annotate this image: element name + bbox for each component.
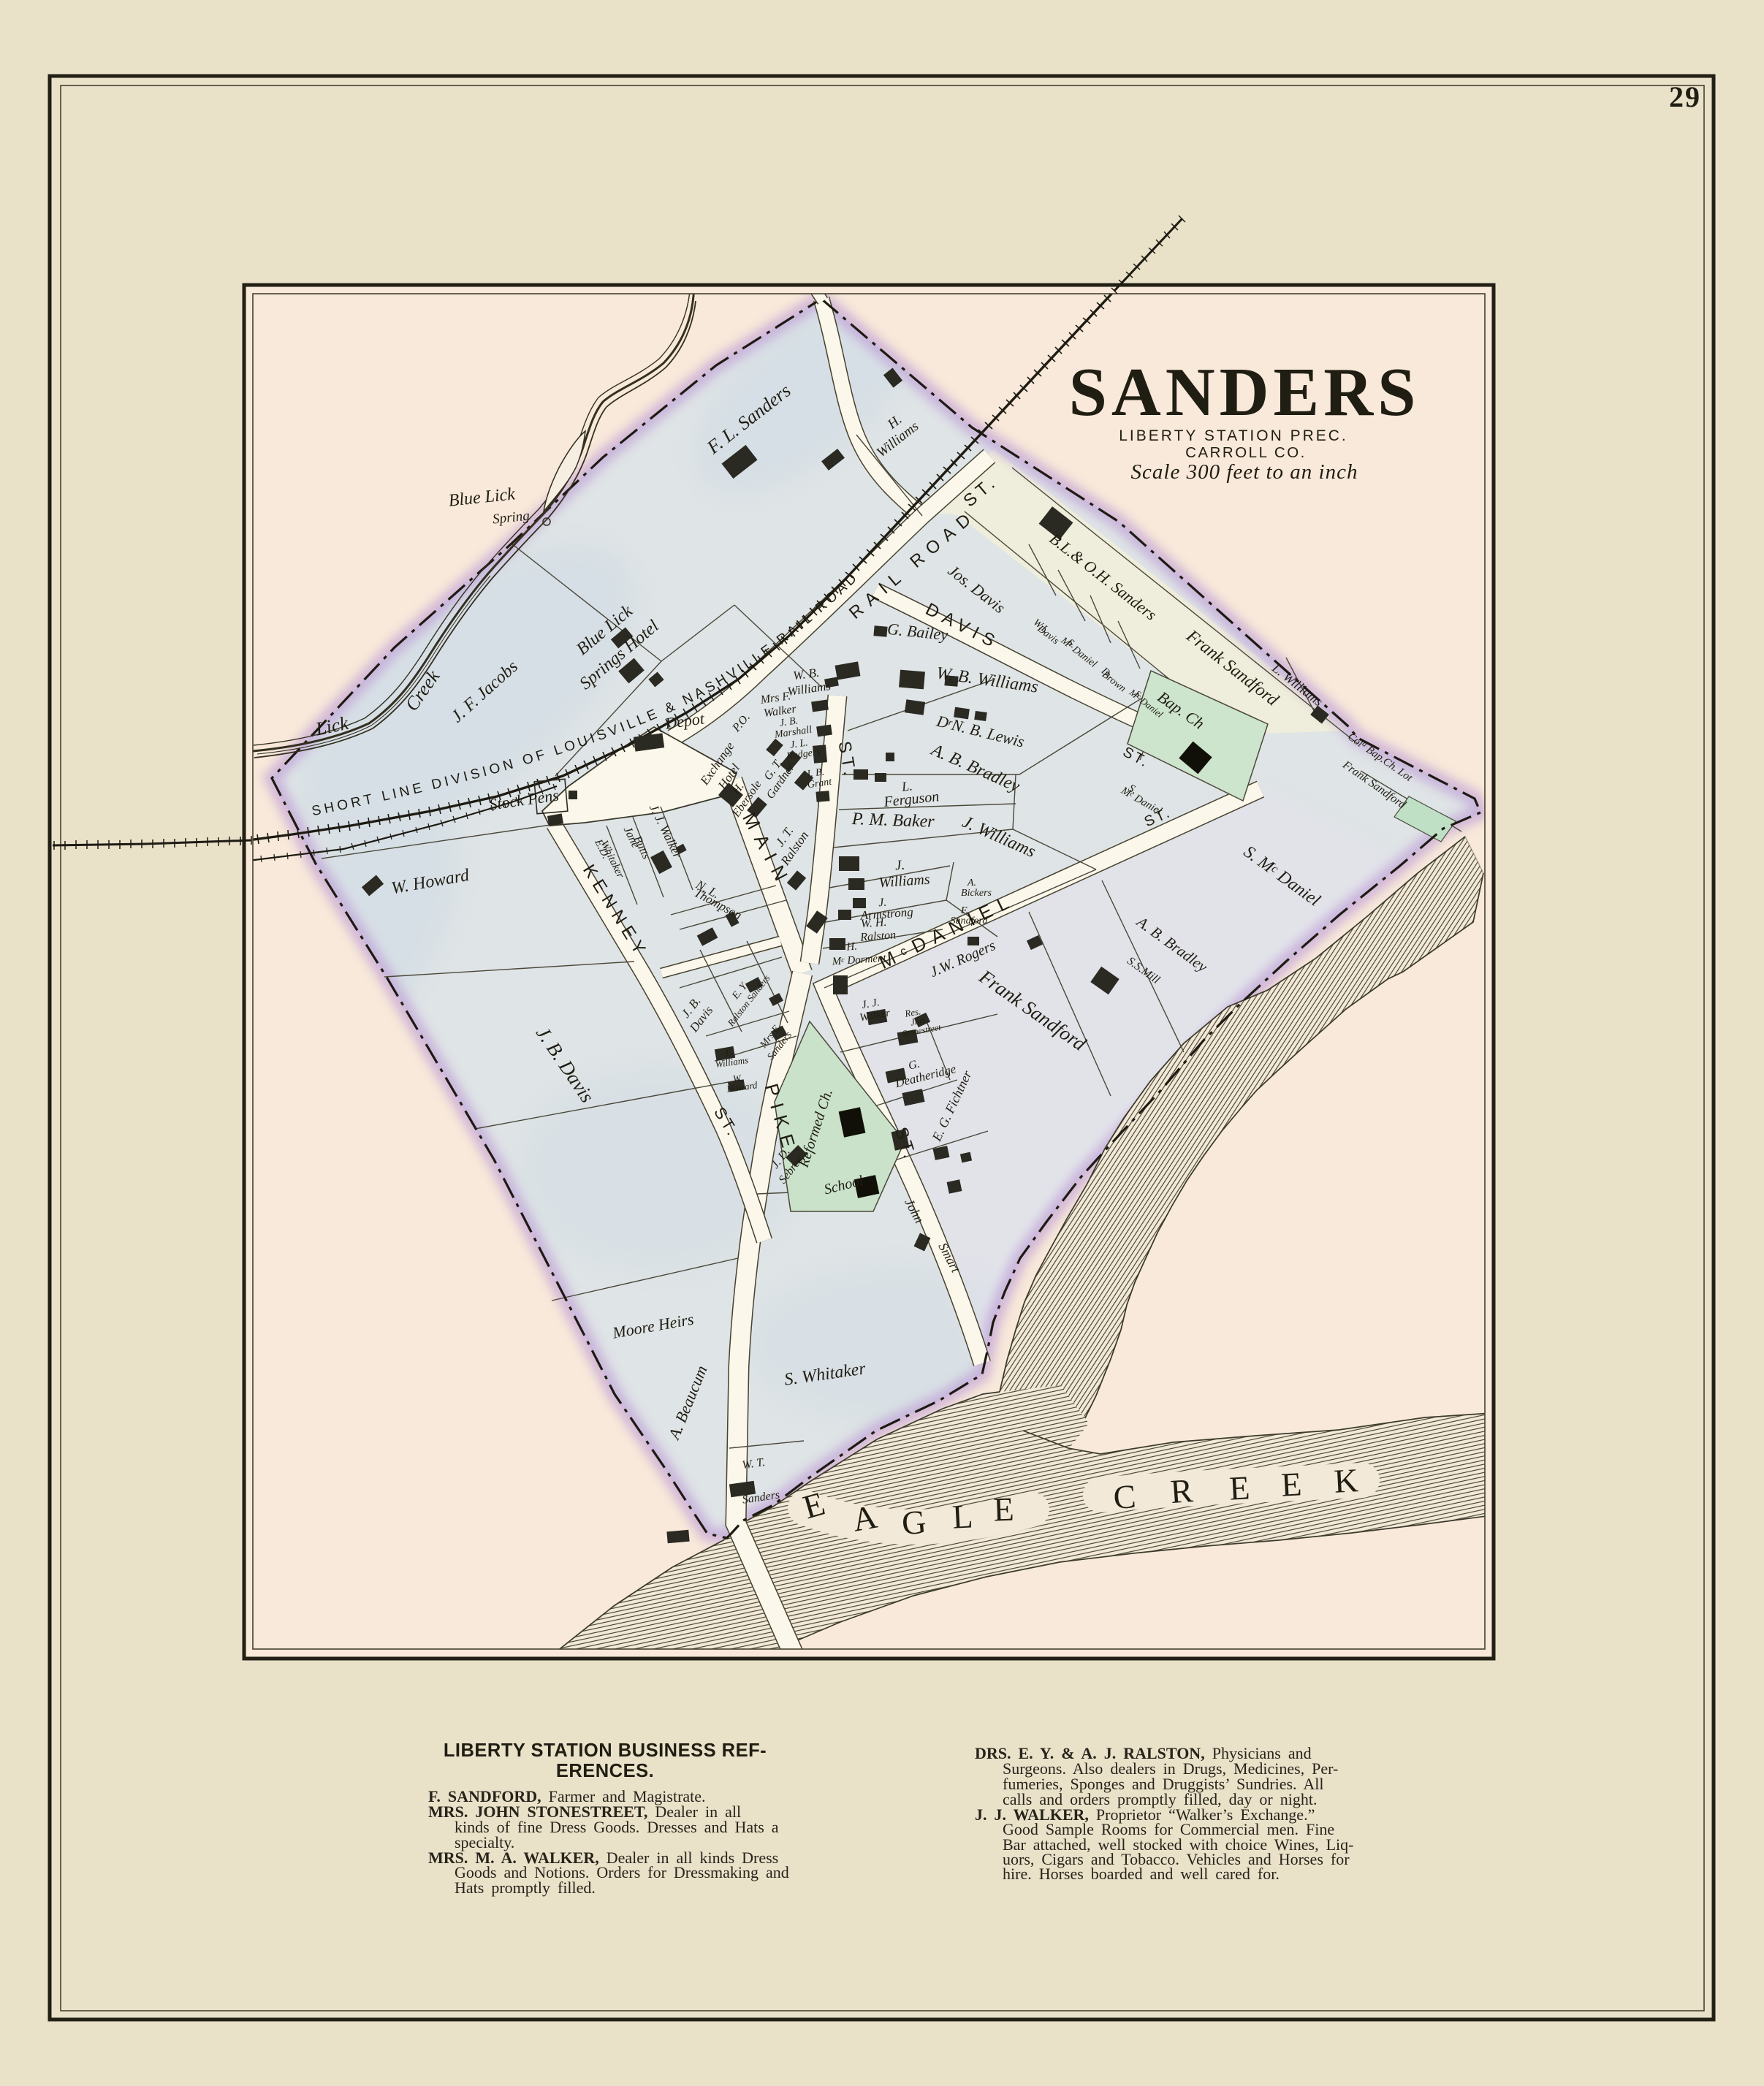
svg-text:Sandford: Sandford [951,916,989,926]
svg-text:W. H.: W. H. [860,916,887,930]
svg-text:ERENCES.: ERENCES. [556,1761,654,1781]
svg-text:Scale 300 feet to an inch: Scale 300 feet to an inch [1131,460,1358,484]
svg-text:A.: A. [967,878,976,888]
svg-text:K: K [1333,1461,1359,1500]
svg-text:L: L [951,1497,974,1535]
svg-text:E: E [993,1491,1015,1529]
svg-text:CARROLL CO.: CARROLL CO. [1185,444,1307,461]
svg-text:H.: H. [845,941,858,953]
svg-text:29: 29 [1669,80,1701,113]
svg-text:LIBERTY STATION BUSINESS REF-: LIBERTY STATION BUSINESS REF- [444,1740,767,1761]
svg-text:R: R [1169,1472,1194,1510]
svg-text:Hats promptly filled.: Hats promptly filled. [455,1878,596,1897]
svg-text:F.: F. [960,905,968,916]
svg-text:E: E [1228,1469,1251,1507]
svg-text:Ralston: Ralston [859,929,897,943]
svg-text:Bickers: Bickers [961,888,992,899]
svg-text:E: E [1280,1465,1303,1503]
svg-text:J.: J. [894,858,905,874]
svg-text:P. M. Baker: P. M. Baker [851,810,935,831]
svg-text:C: C [1112,1477,1137,1516]
svg-text:LIBERTY STATION PREC.: LIBERTY STATION PREC. [1119,427,1348,444]
svg-text:G: G [900,1503,928,1542]
svg-text:hire. Horses boarded and well: hire. Horses boarded and well cared for. [1003,1865,1280,1883]
svg-text:SANDERS: SANDERS [1069,354,1421,430]
